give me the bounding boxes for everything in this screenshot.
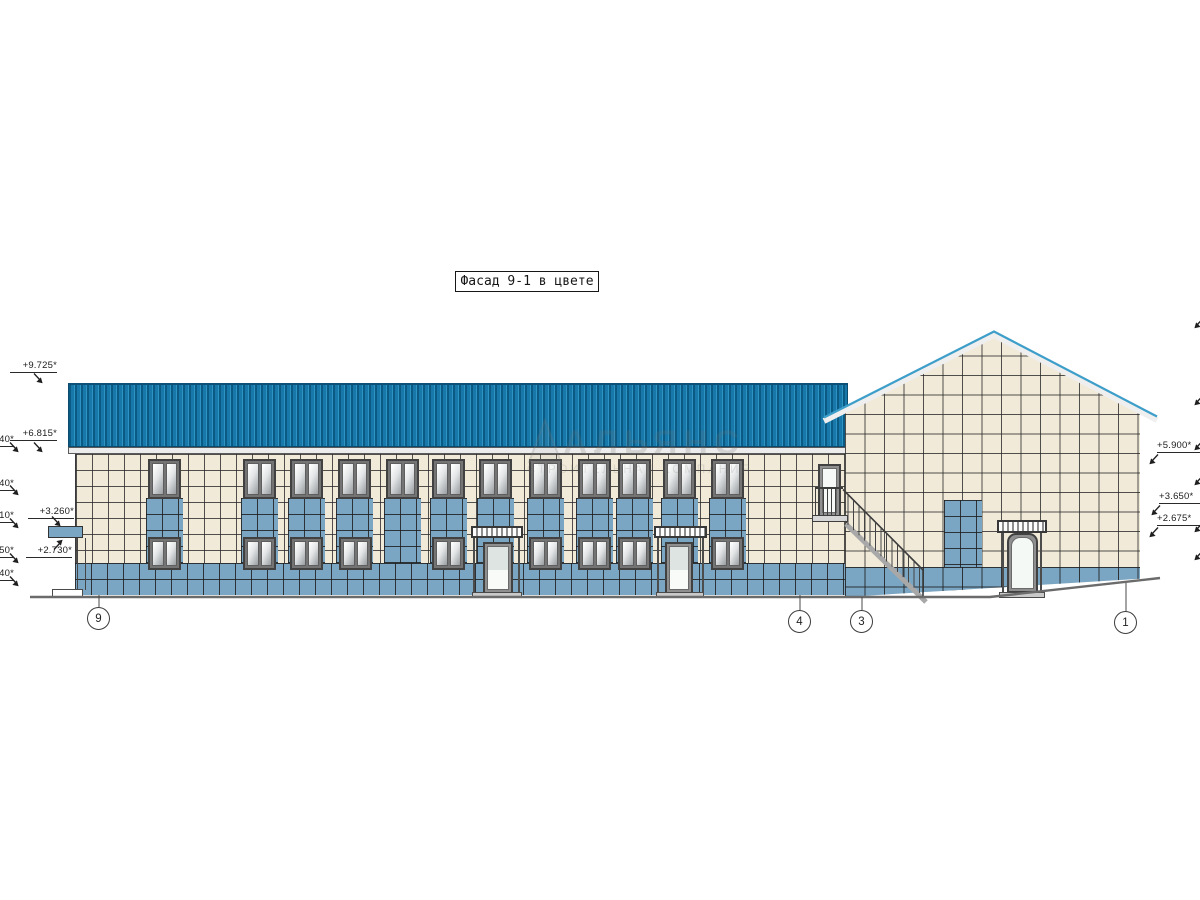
elevation-arrow-icon [1191,521,1200,534]
elevation-arrow-icon [8,575,22,588]
elevation-arrow-icon [32,372,46,385]
elevation-arrow-icon [8,484,22,497]
elevation-arrow-icon [1191,317,1200,330]
drawing-title-text: Фасад 9-1 в цвете [460,274,593,289]
facade-drawing-canvas: Фасад 9-1 в цвете +9.725* +6.815* +3.260… [0,0,1200,900]
elevation-arrow-icon [1191,439,1200,452]
elevation-mark: +3.650* [1159,492,1200,504]
elevation-mark: +6.815* [10,429,57,441]
ground-line [30,578,1160,597]
axis-bubble-4: 4 [788,610,811,633]
axis-bubble-3: 3 [850,610,873,633]
elevation-arrow-icon [1191,474,1200,487]
elevation-arrow-icon [1146,526,1160,539]
elevation-arrow-icon [52,538,66,551]
gable-roof-edge [824,332,1157,418]
stair-balusters [848,495,920,593]
elevation-arrow-icon [8,517,22,530]
elevation-arrow-icon [8,552,22,565]
linework-overlay [0,0,1200,900]
elevation-arrow-icon [1148,504,1162,517]
axis-bubble-1: 1 [1114,611,1137,634]
elevation-arrow-icon [1191,394,1200,407]
elevation-arrow-icon [32,441,46,454]
drawing-title: Фасад 9-1 в цвете [455,271,599,292]
elevation-arrow-icon [50,515,64,528]
elevation-arrow-icon [1146,453,1160,466]
elevation-arrow-icon [1191,549,1200,562]
axis-bubble-9: 9 [87,607,110,630]
gable-roof-fascia [824,335,1157,421]
elevation-arrow-icon [8,441,22,454]
